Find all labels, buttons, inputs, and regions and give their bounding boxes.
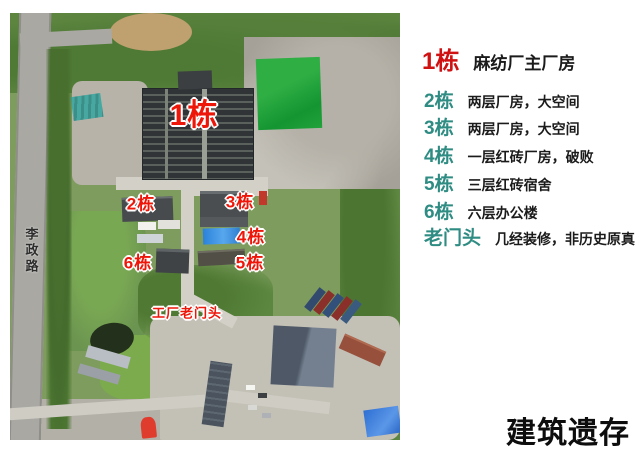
map-label-building-1: 1栋 xyxy=(170,90,219,134)
legend-row-5: 5栋 三层红砖宿舍 xyxy=(424,169,552,196)
green-court xyxy=(256,57,322,130)
dirt-patch xyxy=(110,13,192,51)
aerial-photo: 1栋 2栋 3栋 4栋 5栋 6栋 工厂老门头 李政路 xyxy=(10,13,400,440)
roadside-tree-line xyxy=(46,49,72,429)
white-container-2 xyxy=(158,220,180,229)
road-name-label: 李政路 xyxy=(22,227,41,275)
blue-roof-south xyxy=(363,406,400,438)
legend-desc-6: 六层办公楼 xyxy=(468,203,538,223)
legend-desc-5: 三层红砖宿舍 xyxy=(468,175,552,195)
map-label-building-4: 4栋 xyxy=(237,223,265,248)
car-4 xyxy=(262,413,271,418)
map-label-building-6: 6栋 xyxy=(124,249,152,274)
building-4-blue-roof xyxy=(203,227,241,244)
red-container xyxy=(259,191,267,205)
white-container xyxy=(138,222,156,230)
map-label-building-2: 2栋 xyxy=(127,190,155,215)
site-main-lane xyxy=(181,177,194,311)
map-label-old-gate: 工厂老门头 xyxy=(152,303,222,322)
warehouse-roof xyxy=(270,325,336,387)
map-label-building-3: 3栋 xyxy=(226,188,254,213)
legend-desc-1: 麻纺厂主厂房 xyxy=(473,49,575,74)
map-label-building-5: 5栋 xyxy=(236,249,264,274)
legend-row-3: 3栋 两层厂房，大空间 xyxy=(424,113,580,140)
legend-row-1: 1栋 麻纺厂主厂房 xyxy=(422,41,575,76)
car-2 xyxy=(258,393,267,398)
factory-roof-gap2 xyxy=(165,89,168,179)
red-tent xyxy=(140,416,157,438)
legend-num-old-gate: 老门头 xyxy=(424,223,481,250)
legend-desc-4: 一层红砖厂房，破败 xyxy=(468,147,594,167)
car-3 xyxy=(248,405,257,410)
box-truck xyxy=(137,234,163,243)
legend-num-4: 4栋 xyxy=(424,141,454,168)
page-title: 建筑遗存 xyxy=(506,408,636,451)
legend-desc-2: 两层厂房，大空间 xyxy=(468,92,580,112)
legend-num-3: 3栋 xyxy=(424,113,454,140)
legend-num-2: 2栋 xyxy=(424,86,454,113)
north-hut-roof xyxy=(178,70,213,89)
legend-desc-old-gate: 几经装修，非历史原真 xyxy=(495,229,635,249)
legend-num-5: 5栋 xyxy=(424,169,454,196)
teal-tarp xyxy=(70,93,103,121)
building-6-roof xyxy=(156,248,190,273)
legend-row-2: 2栋 两层厂房，大空间 xyxy=(424,86,580,113)
legend-num-6: 6栋 xyxy=(424,197,454,224)
legend-num-1: 1栋 xyxy=(422,41,459,76)
slide: 1栋 2栋 3栋 4栋 5栋 6栋 工厂老门头 李政路 1栋 麻纺厂主厂房 2栋… xyxy=(0,0,640,451)
legend-row-4: 4栋 一层红砖厂房，破败 xyxy=(424,141,594,168)
car-1 xyxy=(246,385,255,390)
legend-row-6: 6栋 六层办公楼 xyxy=(424,197,538,224)
legend-desc-3: 两层厂房，大空间 xyxy=(468,119,580,139)
legend-row-old-gate: 老门头 几经装修，非历史原真 xyxy=(424,223,635,250)
